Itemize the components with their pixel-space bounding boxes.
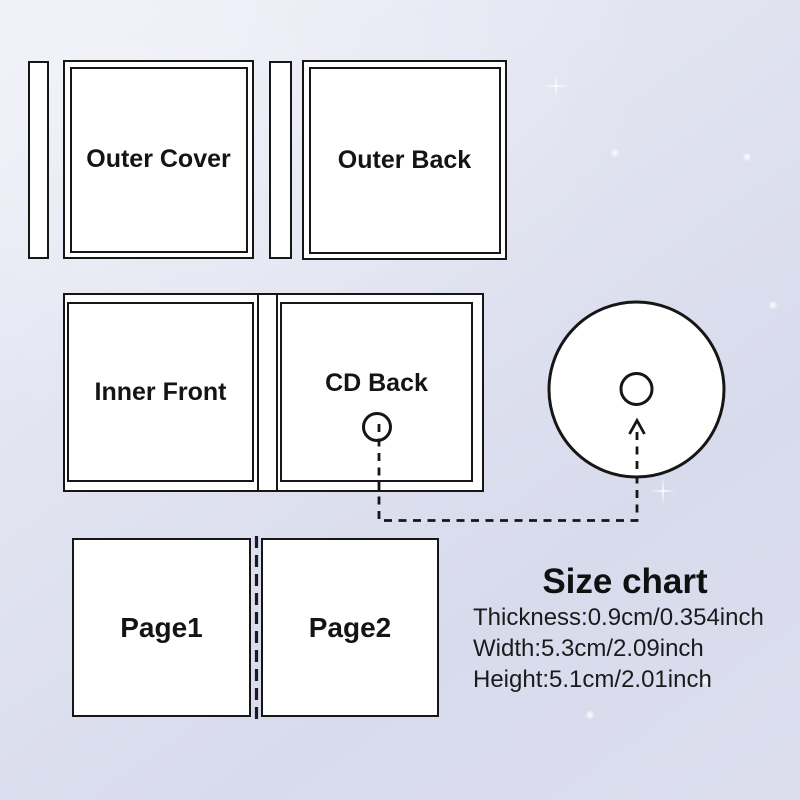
outer-back-label: Outer Back (338, 146, 471, 175)
outer-cover-label: Outer Cover (86, 145, 230, 174)
page2-label: Page2 (309, 612, 392, 644)
outer-cover-spine-strip (28, 61, 49, 259)
inner-front-label: Inner Front (95, 378, 227, 407)
sparkle-icon (610, 148, 620, 158)
size-chart-thickness: Thickness:0.9cm/0.354inch (460, 602, 790, 633)
inner-tray-panel: Inner Front CD Back (63, 293, 484, 492)
outer-back-inner-frame: Outer Back (309, 67, 501, 254)
cd-disc-icon (549, 302, 724, 477)
page2-panel: Page2 (261, 538, 439, 717)
sparkle-icon (585, 710, 595, 720)
size-chart-title: Size chart (460, 562, 790, 602)
cd-disc-center-hole-icon (621, 374, 652, 405)
arrowhead-icon (630, 421, 645, 435)
outer-cover-inner-frame: Outer Cover (70, 67, 248, 253)
cd-back-label: CD Back (325, 369, 428, 398)
cd-case-size-diagram: Outer Cover Outer Back Inner Front CD Ba… (0, 0, 800, 800)
page1-label: Page1 (120, 612, 203, 644)
cd-back-hub-hole-icon (362, 412, 392, 442)
outer-back-spine-strip (269, 61, 292, 259)
page1-panel: Page1 (72, 538, 251, 717)
inner-front-panel: Inner Front (67, 302, 254, 482)
outer-cover-panel: Outer Cover (63, 60, 254, 259)
size-chart-section: Size chart Thickness:0.9cm/0.354inch Wid… (460, 562, 790, 695)
outer-back-panel: Outer Back (302, 60, 507, 260)
cd-back-panel: CD Back (280, 302, 473, 482)
sparkle-icon (768, 300, 778, 310)
sparkle-icon (742, 152, 752, 162)
size-chart-height: Height:5.1cm/2.01inch (460, 664, 790, 695)
size-chart-width: Width:5.3cm/2.09inch (460, 633, 790, 664)
sparkle-icon (650, 478, 676, 504)
sparkle-icon (543, 73, 569, 99)
inner-spine-strip (257, 295, 278, 490)
